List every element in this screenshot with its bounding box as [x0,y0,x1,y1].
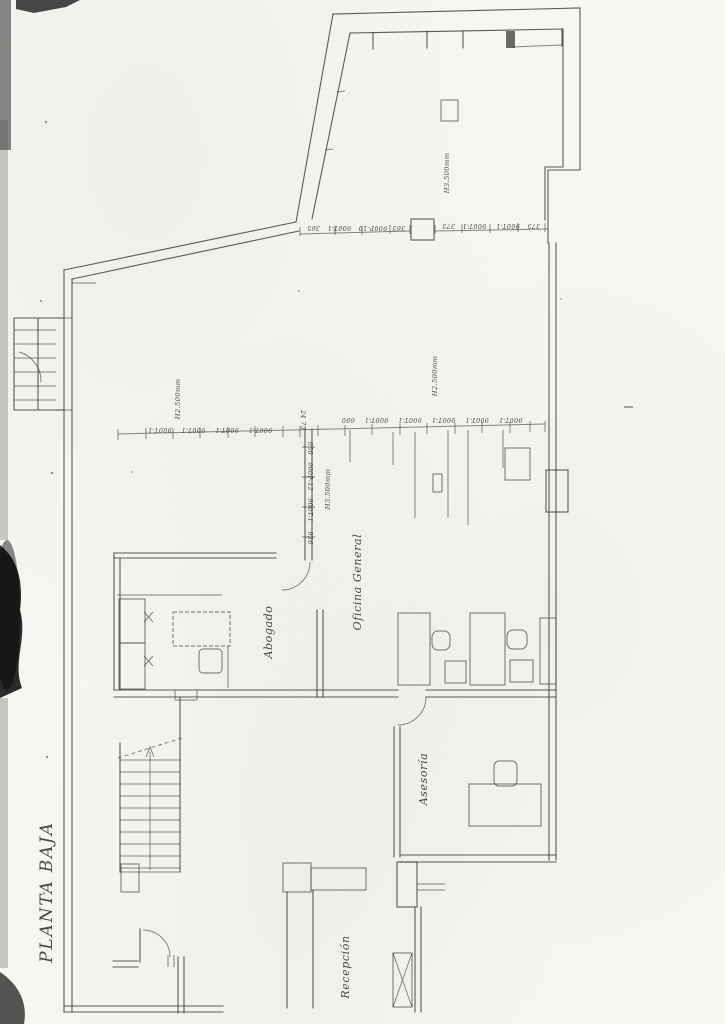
interior-wall-vertical: 950 900P-12 900T-1 936 [282,429,323,697]
scan-speckles [40,121,633,894]
hall-outer-walls [64,222,568,1012]
bottom-left-walls [113,864,184,1013]
dim-wall-vertical: 950 900P-12 900T-1 [306,442,313,522]
room-label-abogado: Abogado [262,605,275,659]
room-label-recepcion: Recepción [339,935,352,999]
abogado-furniture [119,599,230,689]
reception-corridor-walls [287,890,313,1008]
scanned-plan-sheet: H3.500mm 365 900P-10 900T-1 365 375 900T… [0,0,725,1024]
right-office-partitions [350,430,530,525]
dim-mid-left-end: 24 75 [299,409,306,430]
top-room-walls [296,8,580,243]
abogado-room-walls [114,553,276,690]
height-label-hall-right: H2.500mm [431,356,439,398]
reception-desk [283,863,366,892]
room-label-asesoria: Asesoría [417,753,430,807]
top-room-column [441,100,458,121]
dimension-row-top: 365 900P-10 900T-1 365 375 900T-1 900T-1… [300,219,548,240]
entrance-stairs [14,318,72,410]
lower-right-walls [393,862,445,1012]
dim-top-left: 365 900P-10 900T-1 365 [307,224,405,231]
height-label-inner-wall: H3.500mm [324,469,332,511]
main-staircase [118,697,182,872]
dim-wall-vertical-end: 936 [306,531,313,544]
oficina-workstations [398,613,556,685]
dim-mid-right: 900T-1 900T-1 900T-1 900T-1 900T-1 690 [342,416,523,423]
dimension-row-middle: 900T-1 900T-1 900T-1 900T-1 24 75 900T-1… [118,409,545,440]
height-label-top-room: H3.500mm [443,153,451,195]
floor-plan-drawing: H3.500mm 365 900P-10 900T-1 365 375 900T… [0,0,725,1024]
height-label-hall-left: H2.500mm [174,379,182,421]
asesoria-furniture [469,761,541,826]
plan-title: PLANTA BAJA [37,821,57,964]
room-label-oficina-general: Oficina General [351,534,364,631]
dim-mid-left: 900T-1 900T-1 900T-1 900T-1 [148,426,273,433]
dim-top-right: 375 900T-1 900T-1 375 [442,222,540,229]
